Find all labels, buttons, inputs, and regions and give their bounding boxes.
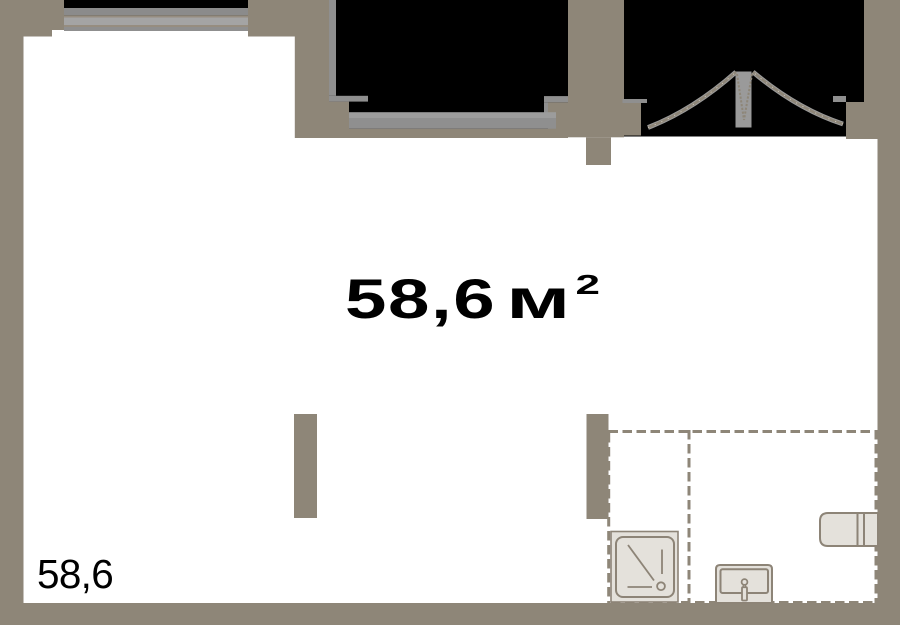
svg-text:58,6: 58,6 (37, 551, 113, 597)
svg-text:м: м (506, 268, 570, 330)
svg-text:2: 2 (576, 269, 600, 300)
svg-text:58,6: 58,6 (345, 267, 496, 330)
